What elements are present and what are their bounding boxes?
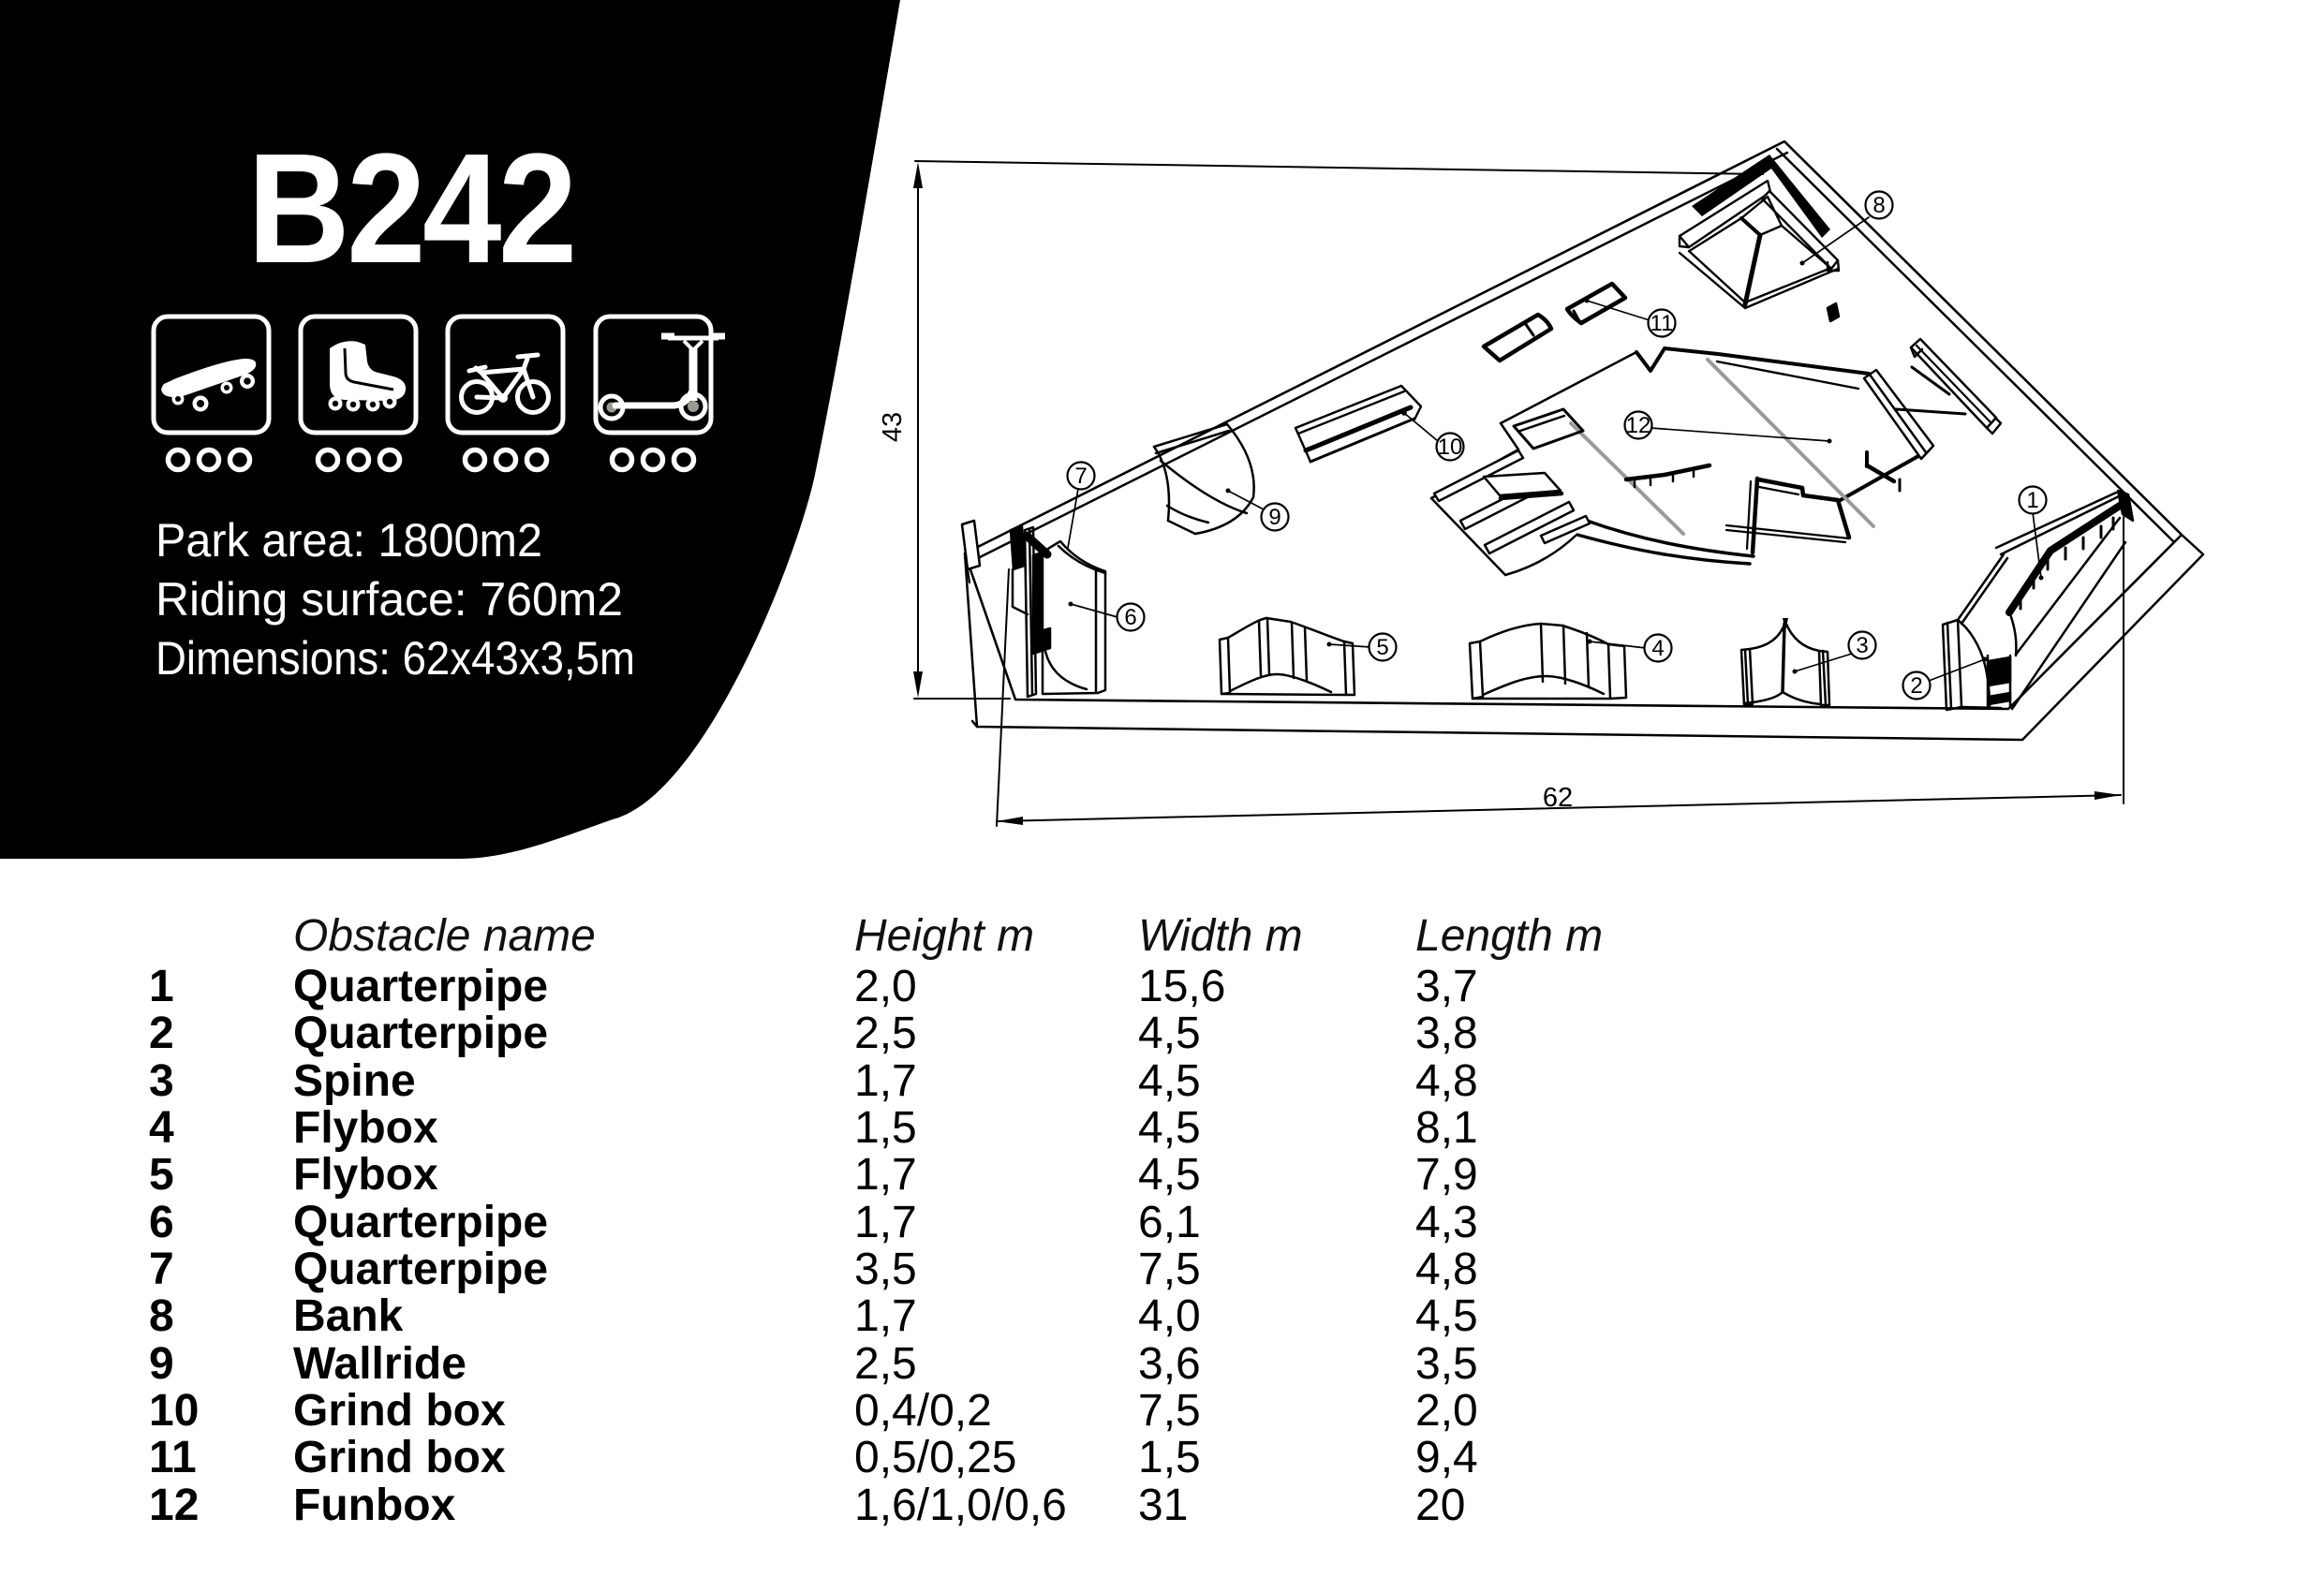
svg-text:10: 10	[1438, 435, 1463, 460]
svg-text:43: 43	[878, 412, 908, 442]
svg-text:20: 20	[1415, 1481, 1465, 1530]
svg-text:31: 31	[1138, 1481, 1188, 1530]
svg-text:B242: B242	[247, 120, 574, 295]
svg-text:1,7: 1,7	[854, 1198, 917, 1247]
svg-text:6,1: 6,1	[1138, 1198, 1201, 1247]
svg-text:11: 11	[149, 1433, 197, 1482]
svg-text:8: 8	[149, 1291, 174, 1341]
svg-text:4,5: 4,5	[1138, 1009, 1201, 1058]
svg-text:3: 3	[1856, 633, 1868, 658]
svg-text:Quarterpipe: Quarterpipe	[293, 1245, 548, 1294]
svg-text:9,4: 9,4	[1415, 1433, 1478, 1482]
svg-text:Flybox: Flybox	[293, 1103, 438, 1153]
svg-text:1: 1	[149, 962, 174, 1011]
svg-text:11: 11	[1650, 311, 1674, 336]
svg-text:8,1: 8,1	[1415, 1103, 1478, 1153]
svg-text:Quarterpipe: Quarterpipe	[293, 1198, 548, 1247]
svg-text:1,6/1,0/0,6: 1,6/1,0/0,6	[854, 1481, 1067, 1530]
svg-text:1,5: 1,5	[1138, 1433, 1201, 1482]
svg-text:6: 6	[1124, 605, 1136, 630]
svg-text:Park area: 1800m2: Park area: 1800m2	[155, 514, 542, 567]
svg-text:Quarterpipe: Quarterpipe	[293, 962, 548, 1011]
svg-text:Grind box: Grind box	[293, 1386, 506, 1436]
svg-text:62: 62	[1543, 783, 1573, 813]
svg-text:1,7: 1,7	[854, 1150, 917, 1200]
svg-text:4,8: 4,8	[1415, 1245, 1478, 1294]
svg-text:Height m: Height m	[854, 911, 1034, 961]
svg-text:4,5: 4,5	[1138, 1056, 1201, 1106]
svg-text:4,0: 4,0	[1138, 1291, 1201, 1341]
svg-text:Bank: Bank	[293, 1291, 404, 1341]
svg-text:9: 9	[149, 1339, 174, 1389]
svg-text:5: 5	[1376, 635, 1388, 660]
svg-text:7,9: 7,9	[1415, 1150, 1478, 1200]
svg-text:Grind box: Grind box	[293, 1433, 506, 1482]
svg-text:1: 1	[2026, 488, 2038, 513]
svg-text:4,8: 4,8	[1415, 1056, 1478, 1106]
svg-text:3,7: 3,7	[1415, 962, 1478, 1011]
svg-text:3,8: 3,8	[1415, 1009, 1478, 1058]
svg-text:12: 12	[1626, 413, 1651, 438]
svg-text:4,5: 4,5	[1415, 1291, 1478, 1341]
svg-text:3,6: 3,6	[1138, 1339, 1201, 1389]
svg-text:7,5: 7,5	[1138, 1386, 1201, 1436]
svg-text:12: 12	[149, 1481, 199, 1530]
svg-text:3,5: 3,5	[854, 1245, 917, 1294]
svg-text:7,5: 7,5	[1138, 1245, 1201, 1294]
svg-text:0,5/0,25: 0,5/0,25	[854, 1433, 1016, 1482]
svg-text:3: 3	[149, 1056, 174, 1106]
svg-text:8: 8	[1873, 193, 1885, 218]
svg-text:2,5: 2,5	[854, 1339, 917, 1389]
svg-text:7: 7	[1074, 464, 1087, 489]
svg-text:Width m: Width m	[1138, 911, 1303, 961]
svg-text:4,3: 4,3	[1415, 1198, 1478, 1247]
svg-text:Spine: Spine	[293, 1056, 416, 1106]
svg-text:0,4/0,2: 0,4/0,2	[854, 1386, 992, 1436]
svg-text:2: 2	[1910, 673, 1922, 699]
svg-text:15,6: 15,6	[1138, 962, 1225, 1011]
svg-text:6: 6	[149, 1198, 174, 1247]
svg-text:Length m: Length m	[1415, 911, 1603, 961]
svg-text:2,5: 2,5	[854, 1009, 917, 1058]
svg-text:5: 5	[149, 1150, 174, 1200]
svg-text:3,5: 3,5	[1415, 1339, 1478, 1389]
svg-text:2: 2	[149, 1009, 174, 1058]
svg-text:9: 9	[1268, 505, 1280, 530]
svg-text:1,7: 1,7	[854, 1056, 917, 1106]
svg-text:2,0: 2,0	[1415, 1386, 1478, 1436]
svg-text:1,5: 1,5	[854, 1103, 917, 1153]
svg-text:Riding surface: 760m2: Riding surface: 760m2	[155, 573, 623, 626]
svg-text:4: 4	[1651, 636, 1664, 661]
svg-text:4,5: 4,5	[1138, 1150, 1201, 1200]
svg-text:Quarterpipe: Quarterpipe	[293, 1009, 548, 1058]
svg-text:Wallride: Wallride	[293, 1339, 466, 1389]
svg-text:1,7: 1,7	[854, 1291, 917, 1341]
svg-text:4,5: 4,5	[1138, 1103, 1201, 1153]
svg-text:10: 10	[149, 1386, 199, 1436]
svg-text:4: 4	[149, 1103, 174, 1153]
svg-text:Flybox: Flybox	[293, 1150, 438, 1200]
svg-text:Obstacle name: Obstacle name	[293, 911, 596, 961]
svg-text:Funbox: Funbox	[293, 1481, 456, 1530]
svg-text:7: 7	[149, 1245, 174, 1294]
svg-text:2,0: 2,0	[854, 962, 917, 1011]
svg-text:Dimensions: 62x43x3,5m: Dimensions: 62x43x3,5m	[155, 632, 635, 685]
